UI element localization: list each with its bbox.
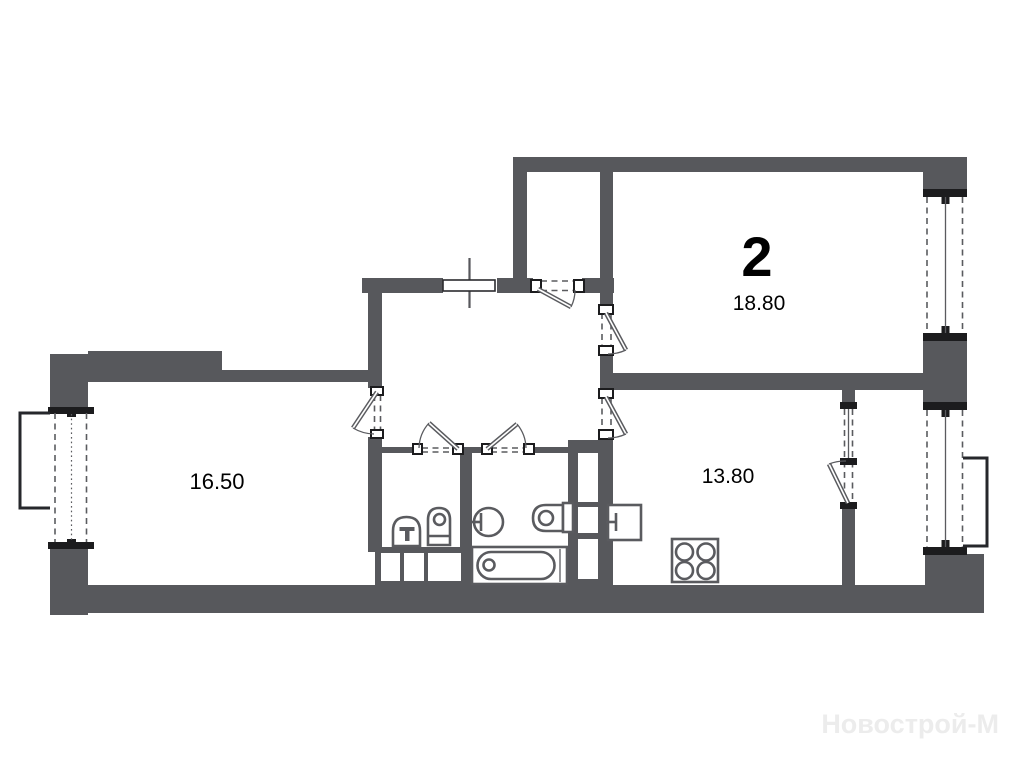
vent-shaft xyxy=(578,507,598,533)
window-sill-cap xyxy=(923,333,967,341)
bathroom-sink xyxy=(471,508,503,536)
window-sill-cap xyxy=(840,402,857,409)
room-count-label: 2 xyxy=(741,225,772,288)
wall-hall-left-lower xyxy=(368,437,382,552)
wall-bottom xyxy=(50,585,984,613)
window-loggia xyxy=(923,402,967,555)
wc-sink-drain xyxy=(434,514,445,525)
window-kitchen-balcony xyxy=(829,402,857,509)
wall-hall-top-a xyxy=(362,278,443,293)
door-wc xyxy=(413,423,463,454)
kitchen-area-label: 13.80 xyxy=(702,465,755,488)
toilet-stem xyxy=(405,530,410,541)
door-panel-core xyxy=(429,423,458,449)
washing-machine-side xyxy=(563,503,573,532)
door-bathroom xyxy=(482,424,534,454)
wall-bedroom-top xyxy=(222,370,368,382)
stove-burner xyxy=(698,544,715,561)
bathtub xyxy=(472,547,567,584)
wall-room2-bottom xyxy=(600,373,923,390)
window-sill-cap xyxy=(923,189,967,197)
window-nub xyxy=(67,539,76,549)
window-left-bedroom xyxy=(48,407,94,549)
wall-top-right xyxy=(513,157,967,172)
watermark: Новострой-М xyxy=(821,709,999,739)
toilet xyxy=(393,517,420,546)
door-panel-core xyxy=(538,289,571,307)
wall-closet-left xyxy=(513,157,527,293)
wall-hall-bottom-a xyxy=(382,447,413,453)
vent-shaft xyxy=(578,539,598,579)
living-room-area-label: 18.80 xyxy=(733,292,786,315)
door-living-room xyxy=(599,305,626,355)
wall-balcony-lower xyxy=(842,509,855,585)
door-jamb xyxy=(599,389,613,398)
washing-machine-drum xyxy=(539,511,553,525)
vent-shaft xyxy=(428,553,461,581)
floor-plan: 2 18.80 16.50 13.80 Новострой-М xyxy=(0,0,1011,768)
kitchen-sink xyxy=(606,505,641,540)
stove-burner xyxy=(676,544,693,561)
window-living-room xyxy=(923,189,967,341)
wall-wc-bath-divider xyxy=(460,447,472,547)
window-sill-cap xyxy=(923,547,967,555)
balcony-right-outline xyxy=(963,458,987,546)
washing-machine xyxy=(533,503,573,532)
wall-bottom-right-corner xyxy=(925,554,984,594)
door-panel-core xyxy=(353,392,377,428)
entrance-door xyxy=(443,258,495,308)
vent-shaft xyxy=(381,553,400,581)
door-jamb xyxy=(599,305,613,314)
door-bedroom xyxy=(353,387,383,438)
bedroom-area-label: 16.50 xyxy=(189,469,244,494)
wall-right-pier xyxy=(923,340,967,402)
wall-top-right-corner xyxy=(923,157,967,190)
floor-plan-page: 2 18.80 16.50 13.80 Новострой-М xyxy=(0,0,1011,768)
door-closet xyxy=(531,280,584,307)
wall-balcony-stub xyxy=(842,390,855,402)
wall-left-upper xyxy=(50,354,88,407)
wall-hall-bottom-center xyxy=(462,447,483,453)
balcony-left-outline xyxy=(20,413,50,508)
door-panel-core xyxy=(606,313,626,350)
wall-hall-top-b xyxy=(497,278,533,293)
door-panel-core xyxy=(487,424,517,449)
door-jamb xyxy=(413,444,422,454)
entrance-leaf xyxy=(443,280,495,291)
wall-hall-top-c xyxy=(582,278,614,293)
stove-burner xyxy=(676,562,693,579)
bathtub-drain xyxy=(484,560,495,571)
door-kitchen xyxy=(599,389,626,439)
window-sill-cap xyxy=(840,502,857,509)
vent-shaft xyxy=(404,553,424,581)
wc-sink xyxy=(428,508,450,545)
wall-bedroom-top-step xyxy=(88,351,222,382)
door-panel-core xyxy=(606,397,626,434)
wall-hall-left-upper xyxy=(368,293,382,388)
stove-burner xyxy=(698,562,715,579)
window-sill-cap xyxy=(923,402,967,410)
stove xyxy=(672,539,718,582)
vent-shaft xyxy=(578,453,598,502)
